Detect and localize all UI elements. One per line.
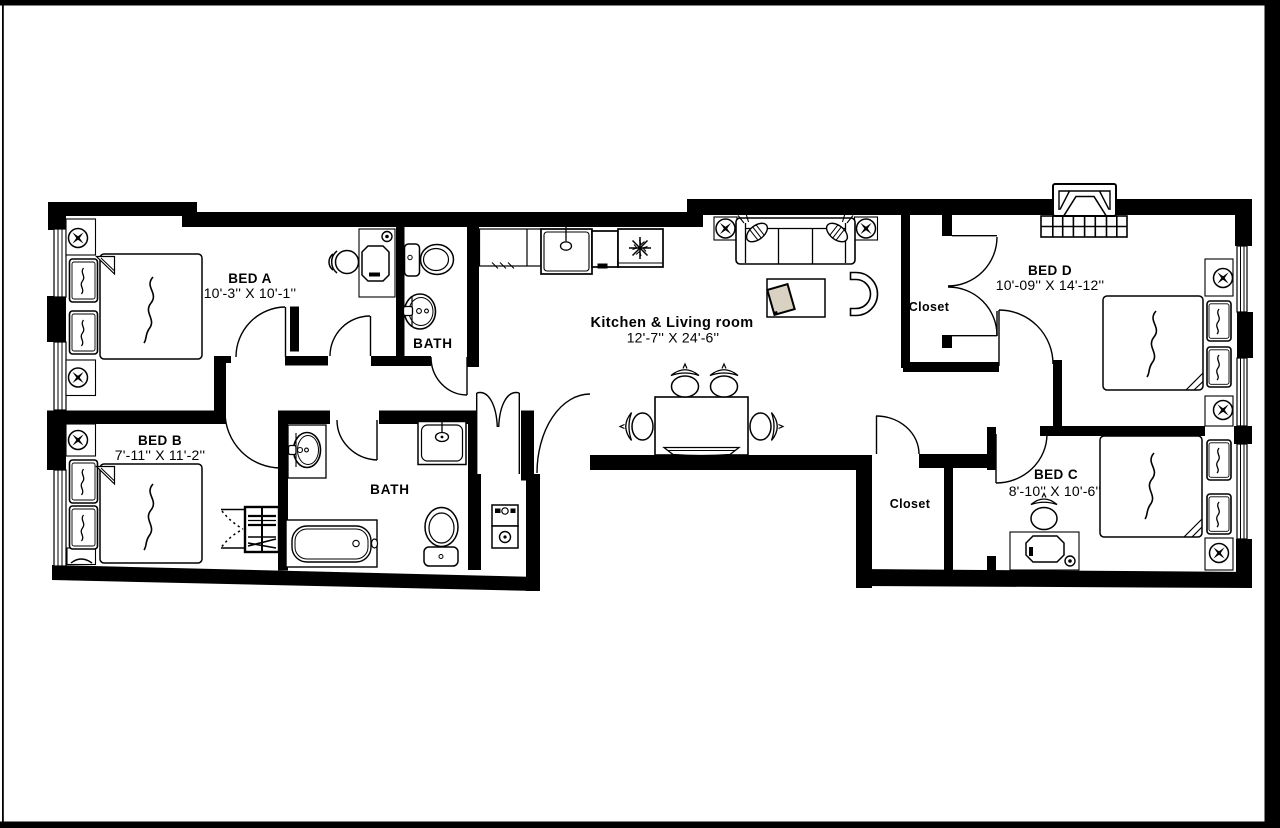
svg-text:7'-11'' X 11'-2'': 7'-11'' X 11'-2'' xyxy=(115,447,206,463)
svg-text:BATH: BATH xyxy=(413,336,453,351)
svg-text:Closet: Closet xyxy=(890,497,931,511)
svg-text:8'-10'' X 10'-6'': 8'-10'' X 10'-6'' xyxy=(1009,483,1102,499)
svg-text:BED A: BED A xyxy=(228,271,272,286)
svg-text:Closet: Closet xyxy=(909,300,950,314)
svg-text:BED B: BED B xyxy=(138,433,182,448)
svg-text:BED D: BED D xyxy=(1028,263,1072,278)
svg-text:10'-3'' X 10'-1'': 10'-3'' X 10'-1'' xyxy=(204,285,297,301)
svg-text:10'-09'' X 14'-12'': 10'-09'' X 14'-12'' xyxy=(996,277,1105,293)
svg-text:BED C: BED C xyxy=(1034,467,1078,482)
svg-text:12'-7'' X 24'-6'': 12'-7'' X 24'-6'' xyxy=(627,330,720,346)
svg-text:BATH: BATH xyxy=(370,482,410,497)
